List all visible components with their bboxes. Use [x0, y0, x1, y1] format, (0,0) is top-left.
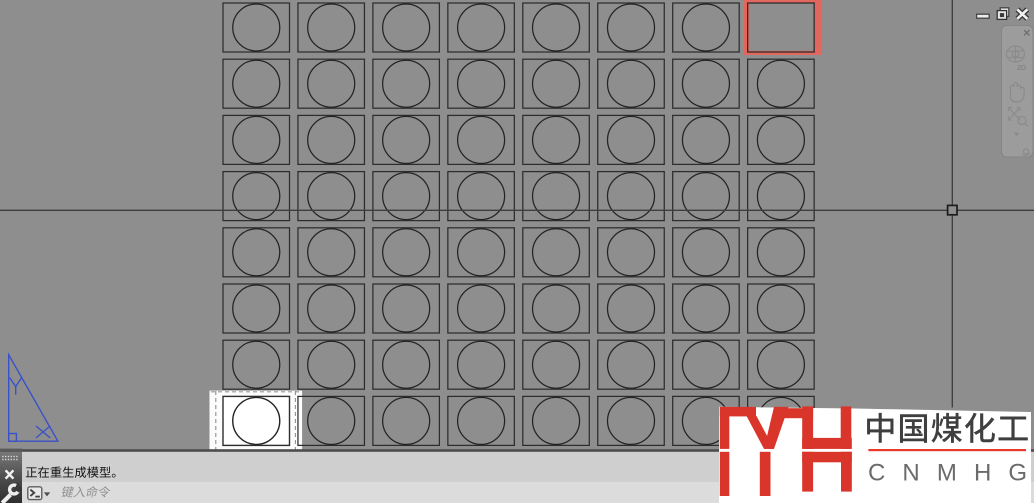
- svg-text:2D: 2D: [1017, 65, 1026, 72]
- svg-text:CNMHG: CNMHG: [868, 460, 1034, 487]
